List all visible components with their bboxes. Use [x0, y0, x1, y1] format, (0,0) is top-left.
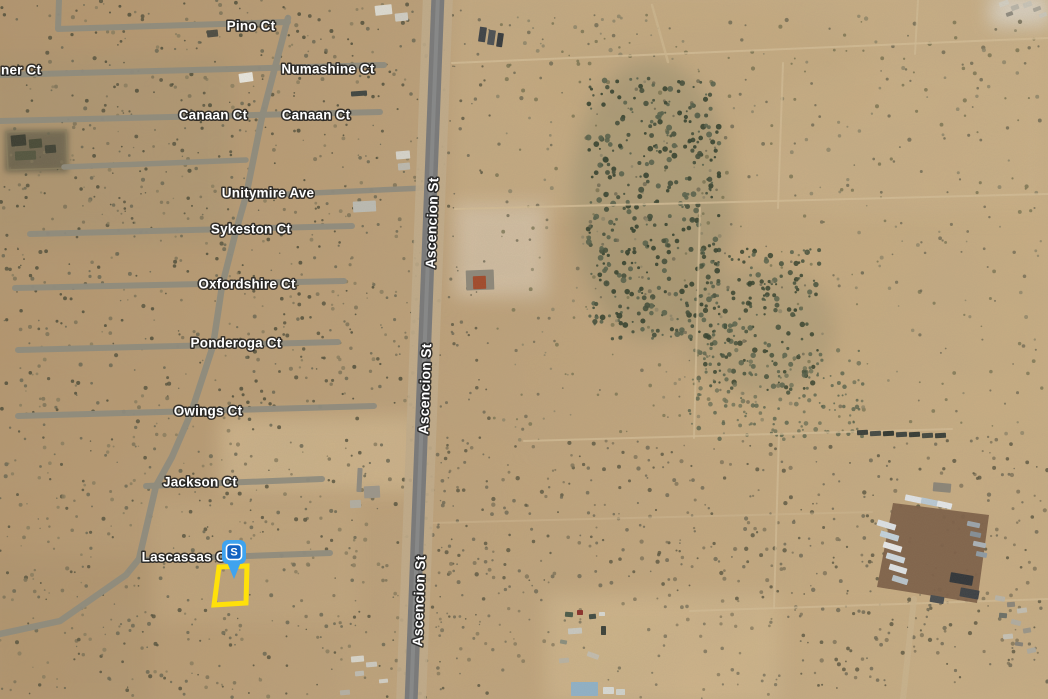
satellite-imagery: Pino Ctner CtNumashine CtCanaan CtCanaan…: [0, 0, 1048, 699]
road-label: Ascencion St: [422, 177, 441, 269]
terrain-grain: [0, 0, 1048, 699]
street-label: Ponderoga Ct: [191, 336, 282, 351]
street-label: Lascassas Ct: [142, 550, 231, 565]
marker-letter: S: [230, 547, 237, 559]
street-label: Oxfordshire Ct: [198, 277, 296, 292]
street-label: Canaan Ct: [179, 108, 248, 123]
street-label: Canaan Ct: [282, 108, 351, 123]
street-label: Jackson Ct: [163, 475, 237, 490]
street-label: ner Ct: [1, 63, 42, 78]
street-label: Pino Ct: [227, 19, 276, 34]
street-label: Sykeston Ct: [211, 222, 292, 237]
satellite-map-view[interactable]: Pino Ctner CtNumashine CtCanaan CtCanaan…: [0, 0, 1048, 699]
street-label: Unitymire Ave: [222, 186, 315, 201]
road-label: Ascencion St: [409, 555, 428, 647]
road-label: Ascencion St: [415, 343, 434, 435]
street-label: Numashine Ct: [281, 62, 374, 77]
street-label: Owings Ct: [174, 404, 243, 419]
